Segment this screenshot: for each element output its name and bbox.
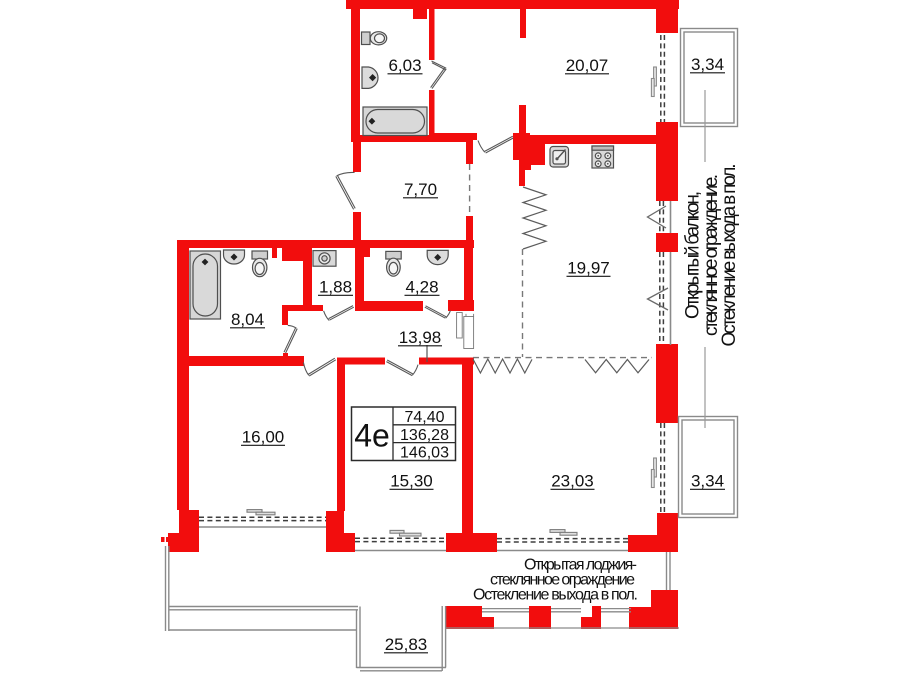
svg-text:25,83: 25,83 (385, 635, 428, 654)
svg-text:136,28: 136,28 (400, 427, 449, 444)
svg-text:13,98: 13,98 (399, 328, 442, 347)
svg-text:20,07: 20,07 (566, 56, 609, 75)
svg-text:4,28: 4,28 (405, 278, 438, 297)
svg-text:6,03: 6,03 (388, 56, 421, 75)
svg-text:Остекление выхода в пол.: Остекление выхода в пол. (719, 164, 740, 347)
svg-text:3,34: 3,34 (691, 472, 724, 491)
svg-text:23,03: 23,03 (551, 472, 594, 491)
svg-text:Остекление выхода в пол.: Остекление выхода в пол. (473, 587, 638, 604)
svg-text:19,97: 19,97 (567, 259, 610, 278)
svg-text:7,70: 7,70 (404, 180, 437, 199)
svg-text:74,40: 74,40 (404, 409, 444, 426)
svg-text:4е: 4е (354, 418, 390, 454)
svg-text:16,00: 16,00 (242, 428, 285, 447)
svg-text:1,88: 1,88 (319, 278, 352, 297)
svg-text:3,34: 3,34 (691, 55, 724, 74)
svg-text:15,30: 15,30 (390, 472, 433, 491)
svg-text:8,04: 8,04 (231, 310, 264, 329)
svg-text:146,03: 146,03 (400, 445, 449, 462)
